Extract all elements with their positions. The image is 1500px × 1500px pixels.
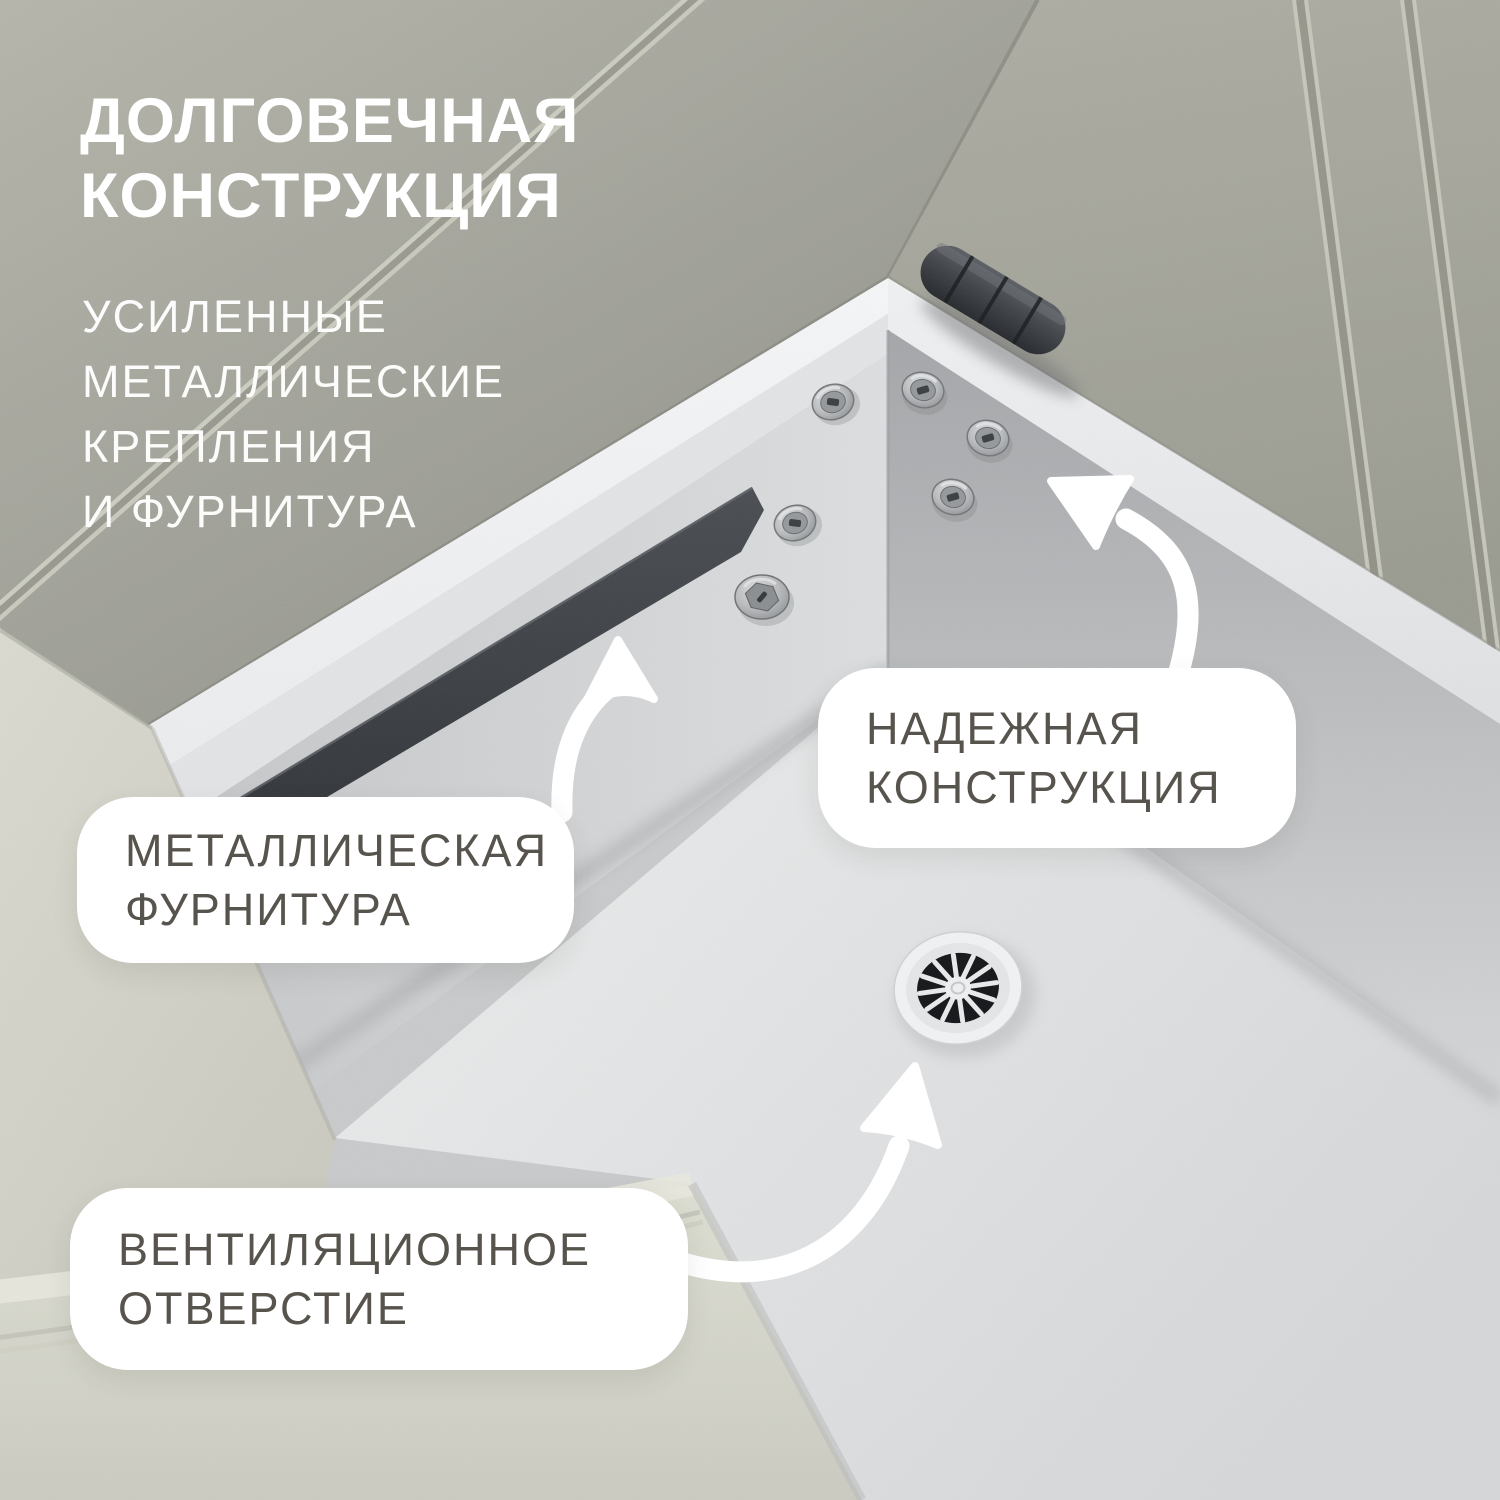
infographic-canvas: ДОЛГОВЕЧНАЯ КОНСТРУКЦИЯ УСИЛЕННЫЕ МЕТАЛЛ… <box>0 0 1500 1500</box>
page-subtitle: УСИЛЕННЫЕ МЕТАЛЛИЧЕСКИЕ КРЕПЛЕНИЯ И ФУРН… <box>82 284 505 544</box>
subtitle-line: И ФУРНИТУРА <box>82 479 505 544</box>
callout-line: КОНСТРУКЦИЯ <box>866 758 1296 817</box>
title-line: ДОЛГОВЕЧНАЯ <box>80 84 579 159</box>
callout-vent-hole: ВЕНТИЛЯЦИОННОЕ ОТВЕРСТИЕ <box>70 1188 688 1370</box>
callout-metal-fittings: МЕТАЛЛИЧЕСКАЯ ФУРНИТУРА <box>77 797 574 963</box>
callout-line: ВЕНТИЛЯЦИОННОЕ <box>118 1220 688 1279</box>
subtitle-line: МЕТАЛЛИЧЕСКИЕ <box>82 349 505 414</box>
callout-line: ФУРНИТУРА <box>125 880 574 939</box>
title-line: КОНСТРУКЦИЯ <box>80 159 579 234</box>
subtitle-line: УСИЛЕННЫЕ <box>82 284 505 349</box>
callout-line: НАДЕЖНАЯ <box>866 699 1296 758</box>
subtitle-line: КРЕПЛЕНИЯ <box>82 414 505 479</box>
page-title: ДОЛГОВЕЧНАЯ КОНСТРУКЦИЯ <box>80 84 579 234</box>
callout-line: ОТВЕРСТИЕ <box>118 1279 688 1338</box>
callout-line: МЕТАЛЛИЧЕСКАЯ <box>125 821 574 880</box>
callout-reliable-construction: НАДЕЖНАЯ КОНСТРУКЦИЯ <box>818 668 1296 848</box>
